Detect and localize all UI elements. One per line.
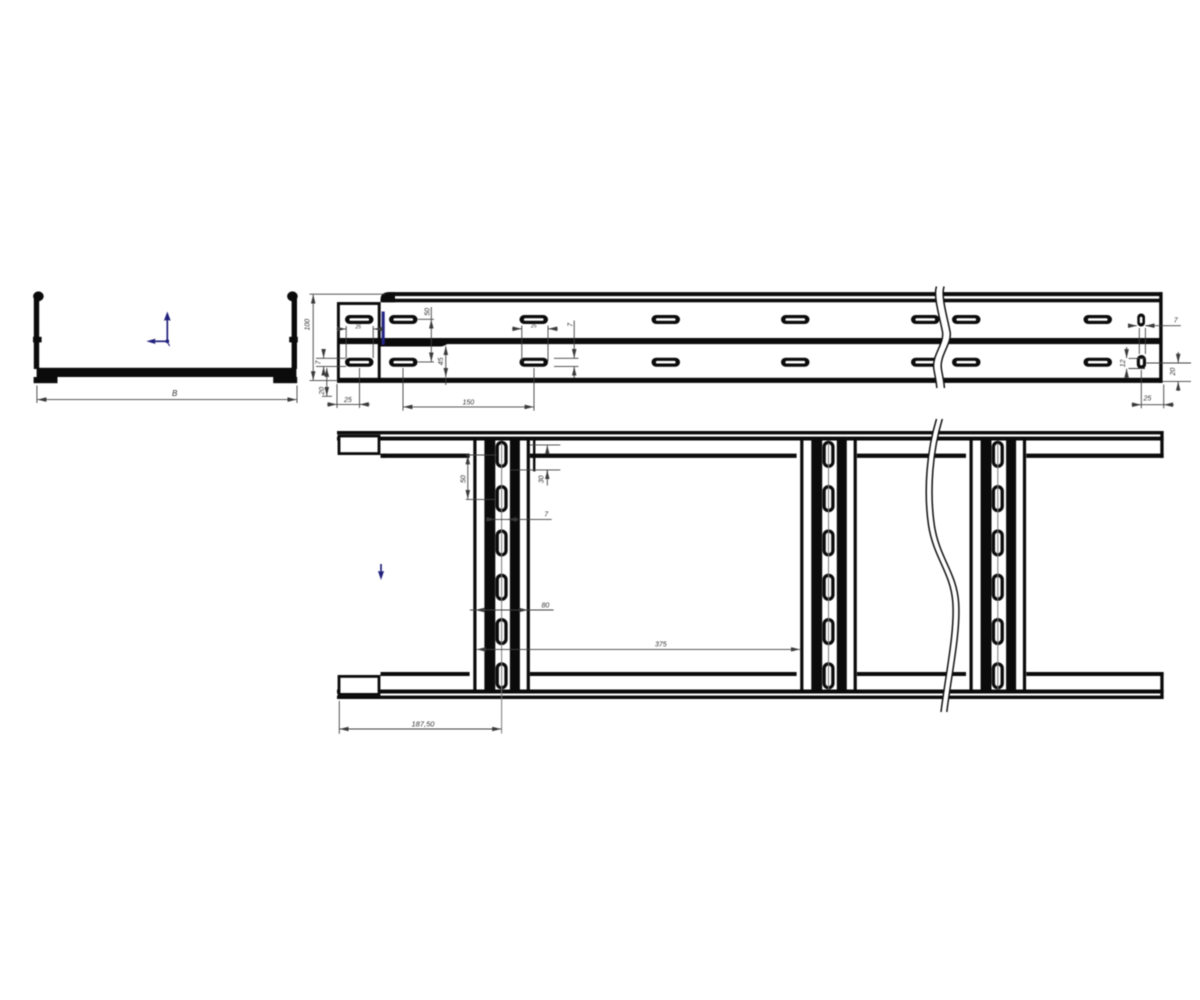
svg-text:100: 100 — [304, 319, 311, 331]
svg-text:30: 30 — [539, 475, 546, 483]
svg-text:50: 50 — [425, 308, 432, 316]
svg-text:45: 45 — [438, 357, 445, 365]
svg-text:375: 375 — [655, 641, 667, 648]
svg-text:25: 25 — [530, 324, 537, 330]
svg-text:12: 12 — [1120, 359, 1127, 367]
svg-text:25: 25 — [355, 324, 362, 330]
svg-text:187,50: 187,50 — [412, 719, 436, 728]
svg-text:50: 50 — [461, 475, 468, 483]
svg-text:20: 20 — [319, 387, 326, 396]
svg-text:20: 20 — [1170, 368, 1177, 377]
svg-text:25: 25 — [1143, 395, 1152, 402]
svg-text:25: 25 — [343, 397, 352, 404]
svg-text:80: 80 — [542, 602, 550, 609]
svg-text:150: 150 — [463, 399, 475, 406]
svg-text:B: B — [172, 389, 178, 398]
